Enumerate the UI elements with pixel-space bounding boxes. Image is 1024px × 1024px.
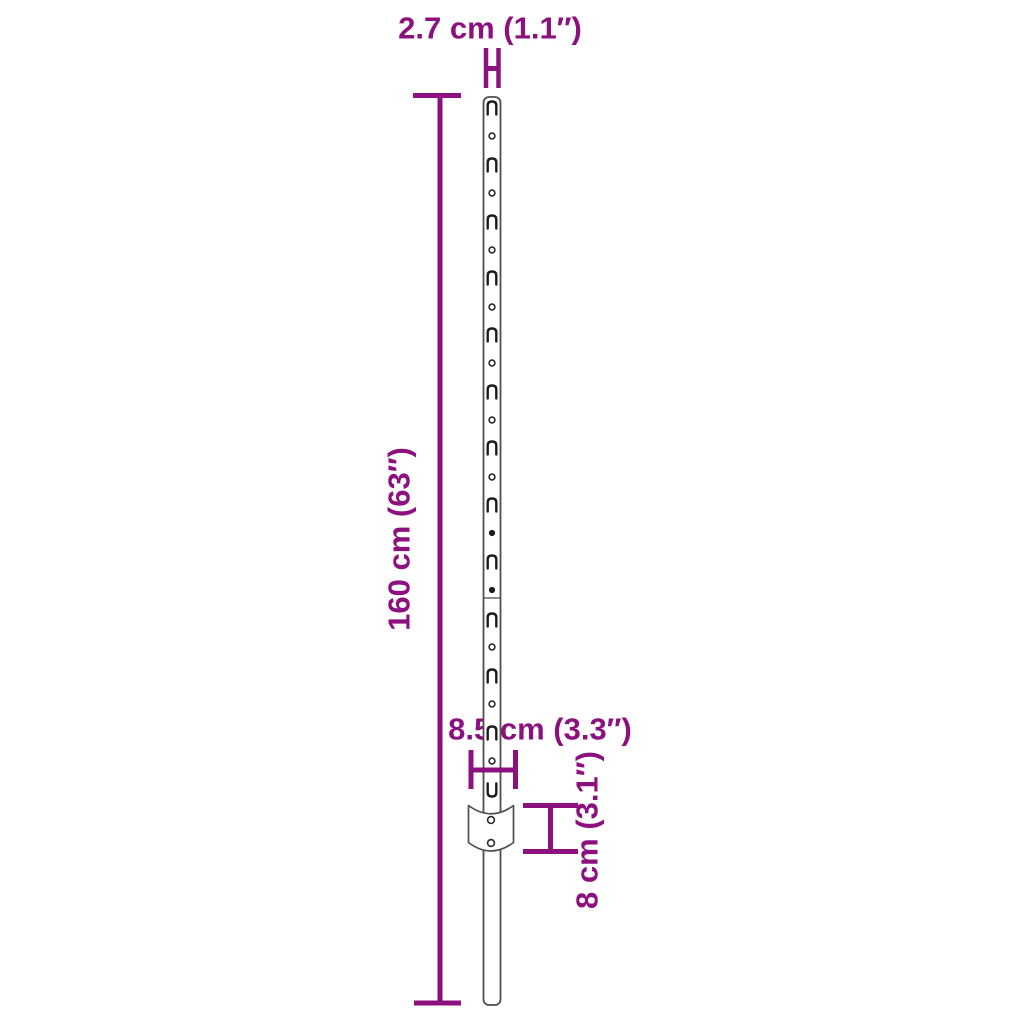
dimension-top-width xyxy=(484,48,501,88)
post-hole xyxy=(489,360,495,366)
dimension-plate-height xyxy=(523,803,578,854)
post-hole xyxy=(489,758,495,764)
diagram-canvas: 2.7 cm (1.1″) 160 cm (63″) 8.5 cm (3.3″)… xyxy=(0,0,1024,1024)
post-hole-filled xyxy=(489,530,495,536)
anchor-plate-hole xyxy=(488,840,495,847)
post-hole xyxy=(489,190,495,196)
post-hole xyxy=(489,247,495,253)
post-hole-filled xyxy=(489,587,495,593)
post-hole xyxy=(489,133,495,139)
dimension-height xyxy=(413,96,461,1004)
anchor-plate-hole xyxy=(488,817,495,824)
post-hole xyxy=(489,701,495,707)
diagram-drawing xyxy=(0,0,1024,1024)
post-hole xyxy=(489,644,495,650)
post-hole xyxy=(489,304,495,310)
u-post-body xyxy=(484,97,501,1005)
post-hole xyxy=(489,474,495,480)
post-hole xyxy=(489,417,495,423)
